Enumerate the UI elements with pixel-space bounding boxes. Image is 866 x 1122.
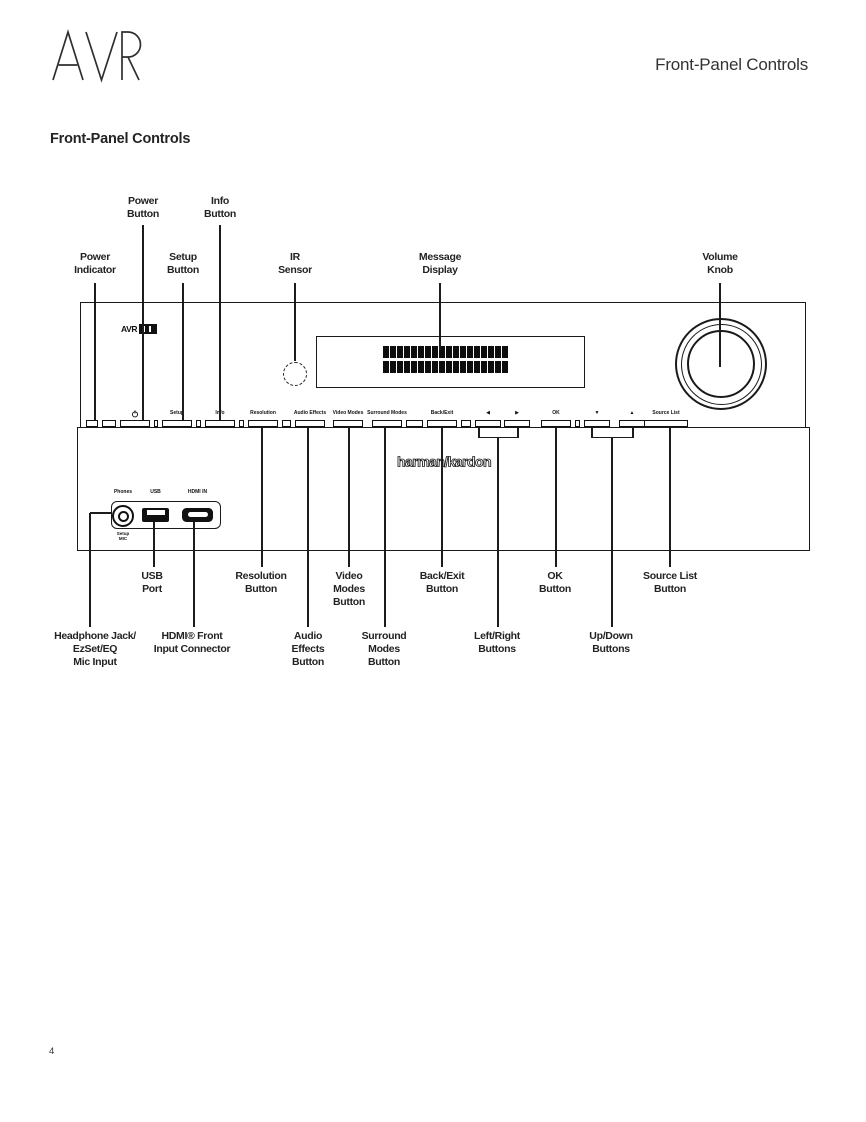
panel-label-resolution: Resolution [250,410,276,416]
callout-label-line: Mic Input [54,656,136,669]
callout-label-left-right-buttons: Left/RightButtons [474,630,520,656]
callout-line-usb-port [153,522,154,567]
callout-line-video-modes-button [348,428,349,567]
panel-button-power [120,420,150,427]
callout-label-line: EzSet/EQ [54,643,136,656]
display-segment [446,346,452,358]
callout-label-line: Setup [167,251,199,264]
callout-label-line: Buttons [474,643,520,656]
display-segment [404,346,410,358]
callout-label-line: Up/Down [589,630,632,643]
page-number: 4 [49,1046,54,1057]
display-segment [383,361,389,373]
display-segment [481,346,487,358]
callout-label-line: Port [141,583,162,596]
panel-label-left: ◀ [486,410,490,416]
usb-port-tongue [147,510,165,515]
callout-label-line: Display [419,264,461,277]
display-segment [453,361,459,373]
display-segment [467,361,473,373]
panel-button-up [619,420,645,427]
panel-button-right [504,420,530,427]
display-segment [397,361,403,373]
display-segment [502,361,508,373]
callout-label-video-modes-button: VideoModesButton [333,570,365,609]
callout-label-line: Button [420,583,465,596]
panel-label-down: ▼ [595,410,600,416]
badge-mark [149,326,151,332]
callout-label-power-indicator: PowerIndicator [74,251,116,277]
callout-label-line: Audio [292,630,325,643]
callout-line-headphone-jack [89,513,90,627]
callout-line-ok-button [555,428,556,567]
panel-strip-segment [282,420,291,427]
display-segment [488,361,494,373]
panel-button-source-list [644,420,688,427]
callout-label-line: Source List [643,570,697,583]
panel-button-down [584,420,610,427]
panel-label-surround-modes: Surround Modes [367,410,407,416]
model-badge-text: AVR [121,324,137,334]
callout-label-info-button: InfoButton [204,195,236,221]
callout-label-line: OK [539,570,571,583]
display-segment [418,361,424,373]
panel-label-back-exit: Back/Exit [431,410,454,416]
callout-label-line: Button [167,264,199,277]
usb-port [142,508,169,522]
callout-line-back-exit-button [441,428,442,567]
panel-button-ok [541,420,571,427]
brand-logo-text: harman/kardon [397,454,491,470]
callout-line-ir-sensor [294,283,295,361]
panel-button-setup [162,420,192,427]
callout-label-line: Surround [362,630,407,643]
callout-label-message-display: MessageDisplay [419,251,461,277]
callout-line-surround-modes-button [384,428,385,627]
callout-line-hdmi-front-input [193,522,194,627]
callout-line-resolution-button [261,428,262,567]
panel-label-source-list: Source List [652,410,679,416]
ir-sensor [283,362,307,386]
panel-button-back-exit [427,420,457,427]
display-segment [411,361,417,373]
display-segment [495,361,501,373]
callout-label-line: IR [278,251,312,264]
panel-button-audio-effects [295,420,325,427]
display-segment [425,361,431,373]
panel-button-surround-modes [372,420,402,427]
display-segment [432,346,438,358]
display-segment [411,346,417,358]
section-title: Front-Panel Controls [50,131,190,147]
callout-label-surround-modes-button: SurroundModesButton [362,630,407,669]
panel-strip-segment [239,420,244,427]
callout-label-source-list-button: Source ListButton [643,570,697,596]
hdmi-label: HDMI IN [188,489,207,495]
callout-label-setup-button: SetupButton [167,251,199,277]
panel-strip-segment [406,420,423,427]
headphone-jack-hole [118,511,129,522]
panel-label-ok: OK [552,410,560,416]
panel-strip-segment [461,420,471,427]
callout-label-hdmi-front-input: HDMI® FrontInput Connector [154,630,231,656]
display-segment [481,361,487,373]
callout-label-ok-button: OKButton [539,570,571,596]
callout-label-resolution-button: ResolutionButton [235,570,286,596]
callout-label-line: Button [235,583,286,596]
callout-bracket-left-right-buttons [478,437,518,438]
callout-label-volume-knob: VolumeKnob [702,251,737,277]
callout-line-volume-knob [719,283,720,367]
model-badge: AVR [121,324,157,334]
callout-label-headphone-jack: Headphone Jack/EzSet/EQMic Input [54,630,136,669]
callout-label-line: Back/Exit [420,570,465,583]
callout-label-line: Power [74,251,116,264]
callout-label-line: Effects [292,643,325,656]
brand-logo: harman/kardon [394,453,494,471]
panel-label-up: ▲ [630,410,635,416]
callout-line-audio-effects-button [307,428,308,627]
callout-label-line: Info [204,195,236,208]
display-segment [453,346,459,358]
avr-logo [50,27,142,85]
callout-label-line: Resolution [235,570,286,583]
power-icon [132,410,139,420]
callout-label-line: Button [292,656,325,669]
callout-label-line: Power [127,195,159,208]
panel-label-right: ▶ [515,410,519,416]
callout-label-line: Video [333,570,365,583]
display-segment [404,361,410,373]
callout-label-line: Modes [333,583,365,596]
callout-label-line: Button [204,208,236,221]
display-segment [425,346,431,358]
callout-label-line: Button [643,583,697,596]
callout-label-power-button: PowerButton [127,195,159,221]
callout-line-source-list-button [669,428,670,567]
display-segment [432,361,438,373]
callout-label-line: HDMI® Front [154,630,231,643]
display-segment [397,346,403,358]
callout-label-up-down-buttons: Up/DownButtons [589,630,632,656]
callout-line-left-right-buttons [497,437,498,627]
callout-line-message-display [439,283,440,350]
display-segment [390,346,396,358]
callout-line-power-button [142,225,143,420]
callout-label-back-exit-button: Back/ExitButton [420,570,465,596]
setup-mic-label: Setup MIC [117,531,130,541]
callout-label-line: Button [539,583,571,596]
panel-button-info [205,420,235,427]
callout-label-line: Knob [702,264,737,277]
usb-label: USB [150,489,161,495]
panel-button-video-modes [333,420,363,427]
display-segment [495,346,501,358]
callout-label-line: Headphone Jack/ [54,630,136,643]
display-segment [446,361,452,373]
callout-label-ir-sensor: IRSensor [278,251,312,277]
callout-label-line: Button [362,656,407,669]
display-segment [474,346,480,358]
callout-label-line: Modes [362,643,407,656]
callout-label-line: Sensor [278,264,312,277]
callout-label-line: Buttons [589,643,632,656]
callout-elbow-headphone-jack [90,512,112,513]
callout-line-setup-button [182,283,183,420]
callout-label-line: Volume [702,251,737,264]
display-segment [460,361,466,373]
callout-label-line: Left/Right [474,630,520,643]
power-indicator-led [86,420,98,427]
callout-label-line: Button [127,208,159,221]
display-segment [474,361,480,373]
callout-label-line: Input Connector [154,643,231,656]
callout-bracket-up-down-buttons [591,437,633,438]
display-segment [383,346,389,358]
callout-label-line: Indicator [74,264,116,277]
display-segment [418,346,424,358]
callout-line-info-button [219,225,220,420]
callout-label-line: Button [333,596,365,609]
callout-label-line: USB [141,570,162,583]
manual-page: AVR Front-Panel Controls Front-Panel Con… [0,0,866,1122]
display-segment [502,346,508,358]
panel-strip-segment [575,420,580,427]
callout-label-usb-port: USBPort [141,570,162,596]
panel-strip-segment [102,420,116,427]
callout-line-up-down-buttons [611,437,612,627]
callout-label-line: Message [419,251,461,264]
panel-label-audio-effects: Audio Effects [294,410,326,416]
volume-knob-cap [687,330,755,398]
callout-label-audio-effects-button: AudioEffectsButton [292,630,325,669]
panel-strip-segment [154,420,158,427]
hdmi-port [182,508,213,522]
header-right-title: Front-Panel Controls [655,55,808,75]
panel-button-resolution [248,420,278,427]
phones-label: Phones [114,489,132,495]
panel-label-video-modes: Video Modes [333,410,364,416]
display-segment [488,346,494,358]
display-segment [390,361,396,373]
callout-line-power-indicator [94,283,95,420]
display-segment [467,346,473,358]
display-segment [439,361,445,373]
panel-button-left [475,420,501,427]
display-segment [460,346,466,358]
panel-strip-segment [196,420,201,427]
hdmi-port-slot [188,512,208,517]
